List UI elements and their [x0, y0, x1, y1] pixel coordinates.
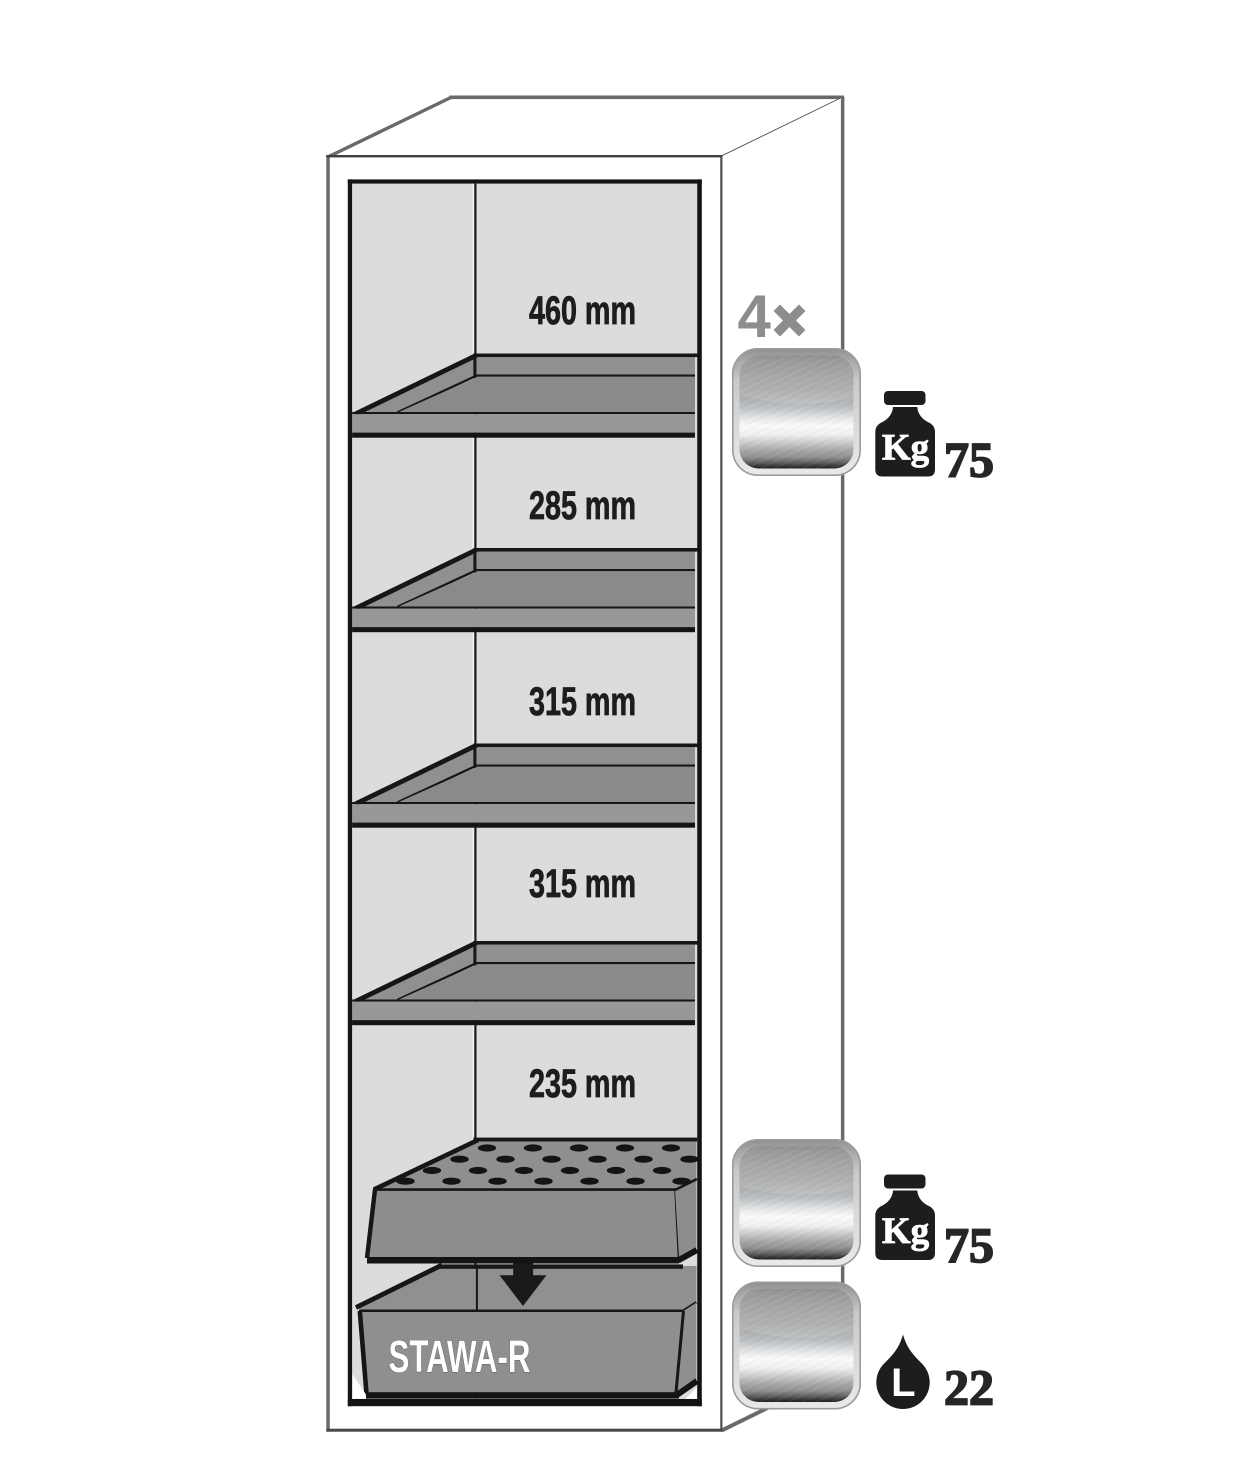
svg-text:L: L: [891, 1361, 915, 1405]
svg-text:285 mm: 285 mm: [529, 484, 636, 528]
svg-text:235 mm: 235 mm: [529, 1062, 636, 1106]
svg-text:315 mm: 315 mm: [529, 680, 636, 724]
svg-text:460 mm: 460 mm: [529, 289, 636, 333]
svg-text:4: 4: [738, 283, 772, 350]
svg-text:STAWA-R: STAWA-R: [389, 1331, 531, 1382]
svg-text:315 mm: 315 mm: [529, 862, 636, 906]
svg-text:22: 22: [944, 1359, 994, 1415]
svg-text:75: 75: [944, 1217, 994, 1273]
svg-text:75: 75: [944, 432, 994, 488]
